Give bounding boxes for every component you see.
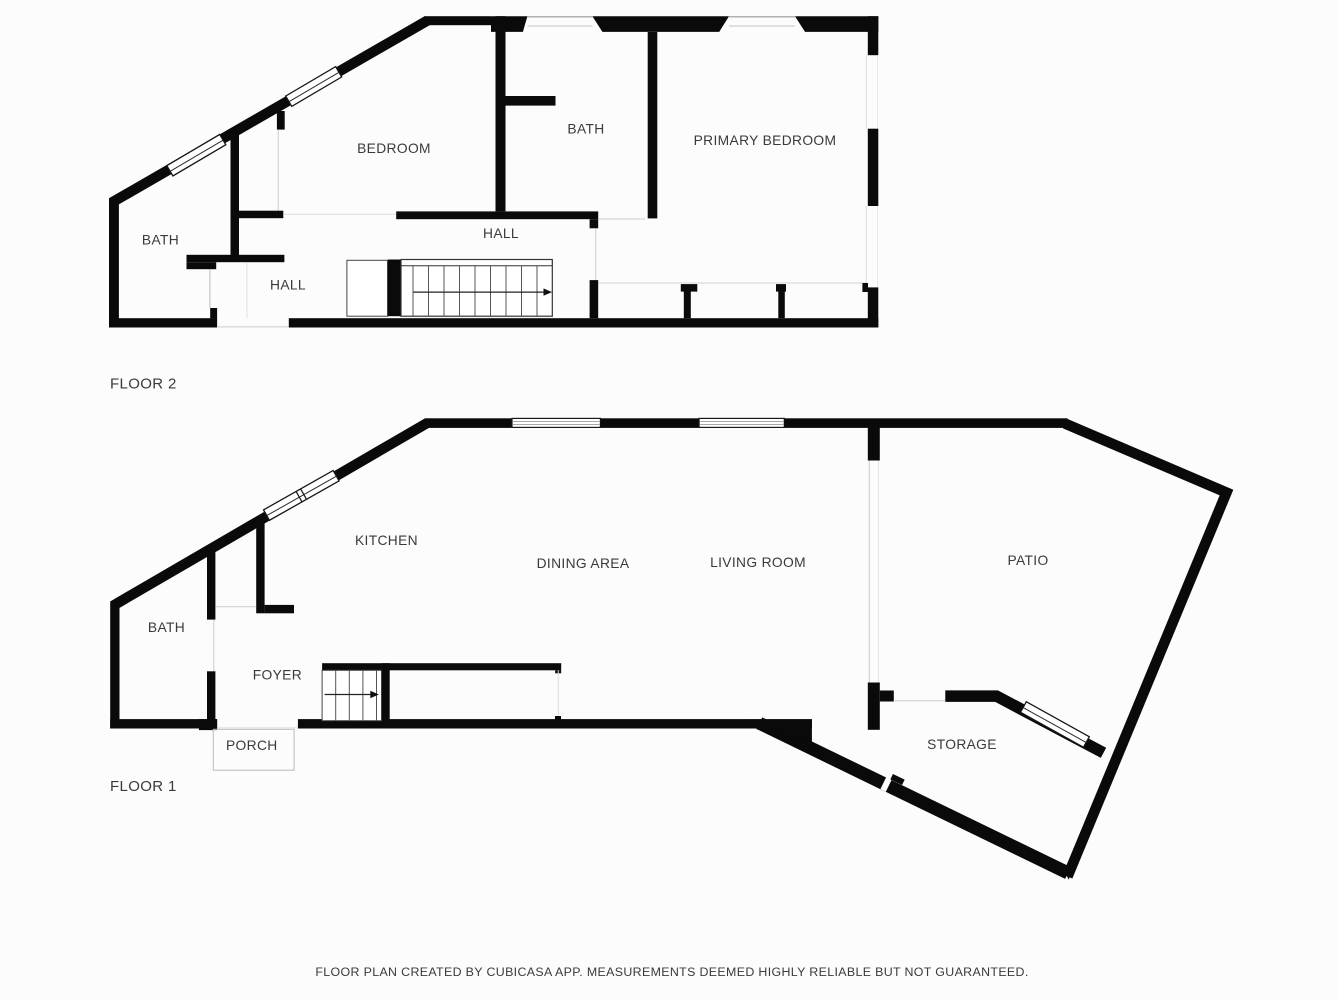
- svg-text:PATIO: PATIO: [1007, 553, 1048, 568]
- svg-text:FLOOR PLAN CREATED BY CUBICASA: FLOOR PLAN CREATED BY CUBICASA APP. MEAS…: [315, 965, 1028, 979]
- svg-text:FOYER: FOYER: [253, 668, 302, 683]
- svg-text:LIVING ROOM: LIVING ROOM: [710, 555, 806, 570]
- svg-text:FLOOR 1: FLOOR 1: [110, 778, 177, 795]
- svg-text:PRIMARY BEDROOM: PRIMARY BEDROOM: [694, 133, 837, 148]
- svg-text:KITCHEN: KITCHEN: [355, 533, 418, 548]
- svg-text:BATH: BATH: [148, 620, 185, 635]
- svg-text:FLOOR 2: FLOOR 2: [110, 376, 177, 393]
- svg-text:DINING AREA: DINING AREA: [537, 556, 630, 571]
- svg-text:BEDROOM: BEDROOM: [357, 141, 431, 156]
- svg-text:HALL: HALL: [483, 226, 519, 241]
- svg-text:BATH: BATH: [567, 122, 604, 137]
- svg-text:BATH: BATH: [142, 233, 179, 248]
- svg-text:HALL: HALL: [270, 278, 306, 293]
- svg-text:PORCH: PORCH: [226, 738, 278, 753]
- svg-text:STORAGE: STORAGE: [927, 737, 997, 752]
